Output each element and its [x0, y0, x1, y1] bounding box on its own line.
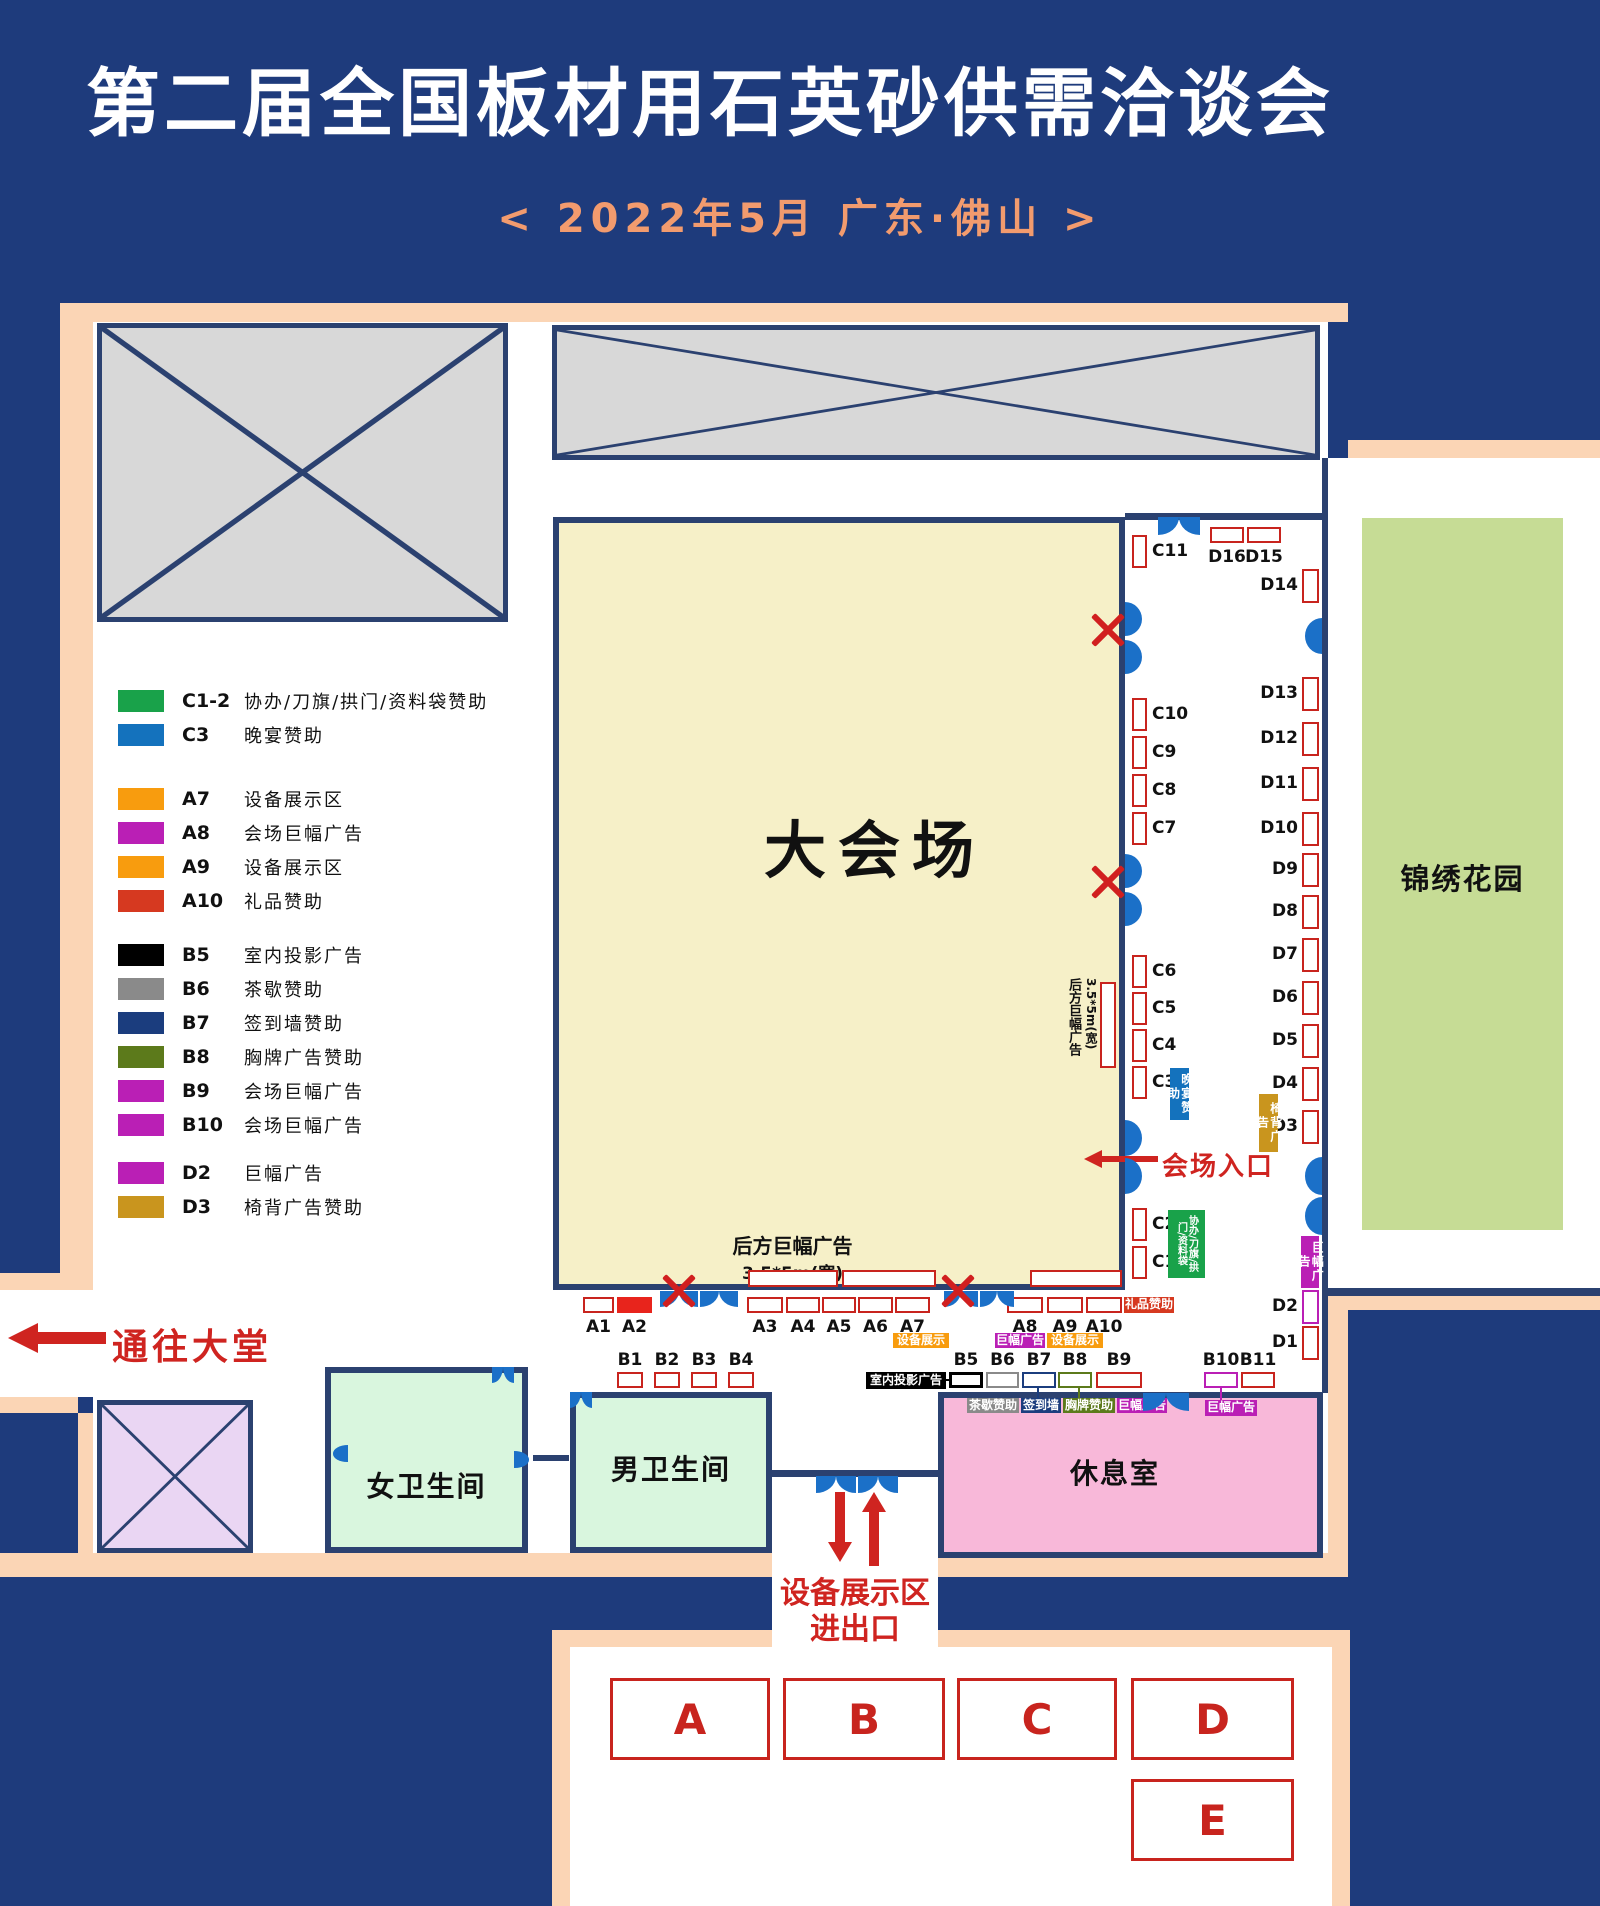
to-lobby-label: 通往大堂	[112, 1318, 272, 1370]
booth-B7	[1022, 1372, 1056, 1388]
frame-left-cap-lower	[0, 1397, 78, 1413]
rear-banner-line1: 后方巨幅广告	[690, 1230, 895, 1259]
restroom-gap-wall	[533, 1455, 569, 1461]
wing-bottom-wall	[1327, 1288, 1600, 1296]
booth-A10	[1086, 1297, 1122, 1313]
lounge-label: 休息室	[938, 1452, 1292, 1492]
booth-D12	[1302, 722, 1319, 756]
hall-entrance-label: 会场入口	[1162, 1146, 1274, 1183]
blocked-area-left	[97, 323, 508, 622]
door-icon	[514, 1451, 529, 1468]
door-icon	[1125, 602, 1142, 636]
women-restroom	[325, 1367, 528, 1553]
garden-label: 锦绣花园	[1362, 856, 1563, 898]
rear-banner-rect-2	[842, 1270, 936, 1287]
gate-arrow-down	[828, 1492, 852, 1566]
equipment-gate-label: 设备展示区 进出口	[762, 1576, 948, 1648]
sponsor-tag-签到墙-10: 签到墙	[1021, 1398, 1061, 1413]
legend-code-A8: A8	[182, 822, 244, 844]
legend-code-B6: B6	[182, 978, 244, 1000]
equipment-gate-line1: 设备展示区	[762, 1576, 948, 1612]
booth-C9	[1132, 736, 1147, 769]
page-title: 第二届全国板材用石英砂供需洽谈会	[0, 44, 1420, 151]
booth-label-C4: C4	[1152, 1035, 1176, 1055]
booth-C10	[1132, 698, 1147, 731]
booth-label-D5: D5	[1254, 1030, 1298, 1050]
booth-D1	[1302, 1326, 1319, 1360]
rear-banner-rect-1	[748, 1270, 838, 1287]
legend-row-B6: B6茶歇赞助	[118, 972, 538, 1006]
booth-label-C6: C6	[1152, 961, 1176, 981]
booth-B2	[654, 1372, 680, 1388]
door-icon	[570, 1392, 592, 1408]
legend-code-C3: C3	[182, 724, 244, 746]
equipment-zone-A: A	[610, 1678, 770, 1760]
door-icon	[1125, 854, 1142, 888]
booth-label-D11: D11	[1254, 773, 1298, 793]
booth-label-D4: D4	[1254, 1073, 1298, 1093]
door-icon	[1305, 1157, 1322, 1195]
legend-row-A7: A7设备展示区	[118, 782, 538, 816]
booth-B5	[949, 1372, 983, 1388]
legend-swatch-B10	[118, 1114, 164, 1136]
blocked-area-lavender	[97, 1400, 253, 1553]
legend-swatch-A9	[118, 856, 164, 878]
booth-label-C10: C10	[1152, 704, 1188, 724]
legend-desc-B8: 胸牌广告赞助	[244, 1044, 364, 1070]
legend-code-B5: B5	[182, 944, 244, 966]
sponsor-tag-巨幅广告-13: 巨幅广告	[1205, 1400, 1257, 1416]
legend-row-B9: B9会场巨幅广告	[118, 1074, 538, 1108]
booth-label-C9: C9	[1152, 742, 1176, 762]
legend-desc-D3: 椅背广告赞助	[244, 1194, 364, 1220]
booth-label-C8: C8	[1152, 780, 1176, 800]
sponsor-tag-胸牌赞助-11: 胸牌赞助	[1063, 1398, 1115, 1413]
to-lobby-arrow	[8, 1323, 108, 1353]
booth-A6	[858, 1297, 893, 1313]
legend-code-A9: A9	[182, 856, 244, 878]
door-icon	[980, 1291, 1014, 1307]
booth-label-D6: D6	[1254, 987, 1298, 1007]
booth-A2	[617, 1297, 652, 1313]
closed-door-x-icon	[661, 1273, 697, 1309]
legend-code-A7: A7	[182, 788, 244, 810]
legend-desc-B10: 会场巨幅广告	[244, 1112, 364, 1138]
connector-b10	[1220, 1388, 1222, 1400]
legend-swatch-D3	[118, 1196, 164, 1218]
legend-row-C3: C3晚宴赞助	[118, 718, 538, 752]
booth-A5	[822, 1297, 856, 1313]
floor-plan-poster: 第二届全国板材用石英砂供需洽谈会 < 2022年5月 广东·佛山 > 大会场 锦…	[0, 0, 1600, 1906]
frame-band-left	[0, 1553, 772, 1577]
legend-swatch-A10	[118, 890, 164, 912]
legend-swatch-C1-2	[118, 690, 164, 712]
frame-left-cap-upper	[0, 1273, 97, 1290]
booth-D9	[1302, 853, 1319, 887]
frame-equip-right	[1332, 1630, 1350, 1906]
legend-row-D2: D2巨幅广告	[118, 1156, 538, 1190]
legend-row-A8: A8会场巨幅广告	[118, 816, 538, 850]
frame-topright	[1348, 440, 1600, 458]
rear-banner-v-line2: 3.5*5m(宽)	[1083, 978, 1100, 1078]
legend-row-D3: D3椅背广告赞助	[118, 1190, 538, 1224]
equipment-zone-E: E	[1131, 1779, 1294, 1861]
booth-C11	[1132, 535, 1147, 568]
frame-equip-topleft	[552, 1630, 772, 1647]
booth-label-D15: D15	[1235, 547, 1293, 567]
sponsor-tag-礼品赞助-4: 礼品赞助	[1124, 1297, 1174, 1313]
sponsor-tag-巨幅广告-3: 巨幅广告	[1301, 1236, 1319, 1288]
booth-B4	[728, 1372, 754, 1388]
frame-equip-topright	[938, 1630, 1332, 1647]
booth-label-B11: B11	[1229, 1350, 1287, 1370]
main-hall	[553, 517, 1125, 1290]
frame-right-thin	[1327, 1310, 1348, 1553]
men-restroom-label: 男卫生间	[570, 1448, 772, 1488]
connector-b7	[1037, 1388, 1039, 1398]
legend-desc-B9: 会场巨幅广告	[244, 1078, 364, 1104]
door-icon	[1125, 892, 1142, 926]
booth-A7	[895, 1297, 930, 1313]
legend-desc-A10: 礼品赞助	[244, 888, 324, 914]
legend-row-C1-2: C1-2协办/刀旗/拱门/资料袋赞助	[118, 684, 538, 718]
door-icon	[1125, 1158, 1142, 1194]
door-icon	[1125, 640, 1142, 674]
legend-row-B7: B7签到墙赞助	[118, 1006, 538, 1040]
booth-B9	[1096, 1372, 1142, 1388]
sponsor-tag-设备展示-5: 设备展示	[893, 1333, 949, 1348]
booth-label-D12: D12	[1254, 728, 1298, 748]
rear-banner-note-vertical: 后方巨幅广告 3.5*5m(宽)	[1064, 978, 1100, 1078]
booth-C6	[1132, 955, 1147, 988]
booth-label-D9: D9	[1254, 859, 1298, 879]
booth-A3	[747, 1297, 783, 1313]
frame-left	[60, 303, 93, 1273]
booth-B8	[1058, 1372, 1092, 1388]
equipment-zone-C: C	[957, 1678, 1117, 1760]
legend-desc-C1-2: 协办/刀旗/拱门/资料袋赞助	[244, 688, 488, 714]
booth-label-D14: D14	[1254, 575, 1298, 595]
booth-label-D8: D8	[1254, 901, 1298, 921]
booth-B1	[617, 1372, 643, 1388]
main-hall-label: 大会场	[575, 800, 1175, 890]
booth-C3	[1132, 1066, 1147, 1099]
sponsor-tag-室内投影广告-8: 室内投影广告	[866, 1372, 946, 1389]
connector-b8	[1078, 1388, 1080, 1398]
frame-top	[60, 303, 1348, 322]
booth-D15	[1247, 527, 1281, 543]
sponsor-tag-协办/刀旗/拱门/资料袋-2: 协办/刀旗/拱门/资料袋	[1168, 1210, 1205, 1278]
legend-row-B10: B10会场巨幅广告	[118, 1108, 538, 1142]
booth-B6	[986, 1372, 1019, 1388]
sponsor-tag-椅背广告-1: 椅背广告	[1259, 1094, 1278, 1152]
door-icon	[1305, 618, 1322, 654]
legend-desc-C3: 晚宴赞助	[244, 722, 324, 748]
booth-D6	[1302, 981, 1319, 1015]
legend-desc-D2: 巨幅广告	[244, 1160, 324, 1186]
door-icon	[1143, 1393, 1189, 1411]
door-icon	[1158, 517, 1200, 535]
booth-label-C5: C5	[1152, 998, 1176, 1018]
booth-label-D2: D2	[1254, 1296, 1298, 1316]
legend-row-A10: A10礼品赞助	[118, 884, 538, 918]
booth-B11	[1241, 1372, 1275, 1388]
frame-equip-left	[552, 1630, 570, 1906]
booth-label-B4: B4	[716, 1350, 766, 1370]
rear-banner-v-line1: 后方巨幅广告	[1064, 978, 1083, 1078]
equipment-zone-B: B	[783, 1678, 945, 1760]
booth-A4	[786, 1297, 820, 1313]
booth-label-B9: B9	[1084, 1350, 1154, 1370]
booth-label-A2: A2	[605, 1317, 664, 1337]
legend-swatch-C3	[118, 724, 164, 746]
booth-D11	[1302, 767, 1319, 801]
equipment-gate-line2: 进出口	[762, 1612, 948, 1648]
legend-desc-A9: 设备展示区	[244, 854, 344, 880]
frame-wing-bottom	[1327, 1295, 1600, 1310]
legend-code-D2: D2	[182, 1162, 244, 1184]
legend-desc-A8: 会场巨幅广告	[244, 820, 364, 846]
corridor-top-wall	[1125, 513, 1328, 520]
booth-B3	[691, 1372, 717, 1388]
legend-row-A9: A9设备展示区	[118, 850, 538, 884]
legend-code-B8: B8	[182, 1046, 244, 1068]
closed-door-x-icon	[1090, 864, 1126, 900]
booth-D5	[1302, 1024, 1319, 1058]
closed-door-x-icon	[1090, 612, 1126, 648]
door-icon	[1125, 1120, 1142, 1156]
legend-row-B5: B5室内投影广告	[118, 938, 538, 972]
booth-label-D10: D10	[1254, 818, 1298, 838]
booth-C2	[1132, 1208, 1147, 1241]
legend-desc-B6: 茶歇赞助	[244, 976, 324, 1002]
legend-code-C1-2: C1-2	[182, 690, 244, 712]
sponsor-tag-晚宴赞助-0: 晚宴赞助	[1170, 1068, 1189, 1120]
booth-C4	[1132, 1029, 1147, 1062]
legend-code-B10: B10	[182, 1114, 244, 1136]
rear-banner-rect-3	[1030, 1270, 1122, 1287]
booth-D8	[1302, 895, 1319, 929]
legend-desc-B7: 签到墙赞助	[244, 1010, 344, 1036]
door-icon	[333, 1445, 348, 1462]
legend-swatch-D2	[118, 1162, 164, 1184]
booth-B10	[1204, 1372, 1238, 1388]
page-subtitle: < 2022年5月 广东·佛山 >	[180, 186, 1420, 244]
booth-D16	[1210, 527, 1244, 543]
door-icon	[816, 1476, 856, 1493]
hall-entrance-arrow	[1084, 1150, 1159, 1168]
door-icon	[1305, 1197, 1322, 1235]
legend-code-D3: D3	[182, 1196, 244, 1218]
closed-door-x-icon	[940, 1273, 976, 1309]
rear-banner-rect-4	[1100, 982, 1116, 1068]
booth-C1	[1132, 1246, 1147, 1279]
legend-code-A10: A10	[182, 890, 244, 912]
booth-D14	[1302, 569, 1319, 603]
booth-D7	[1302, 938, 1319, 972]
door-icon	[858, 1476, 898, 1493]
booth-D4	[1302, 1067, 1319, 1101]
legend-code-B7: B7	[182, 1012, 244, 1034]
connector-b5	[946, 1379, 951, 1381]
legend-desc-B5: 室内投影广告	[244, 942, 364, 968]
sponsor-tag-巨幅广告-6: 巨幅广告	[995, 1333, 1045, 1348]
booth-label-D13: D13	[1254, 683, 1298, 703]
legend-code-B9: B9	[182, 1080, 244, 1102]
booth-D10	[1302, 812, 1319, 846]
booth-label-D7: D7	[1254, 944, 1298, 964]
legend-swatch-B5	[118, 944, 164, 966]
booth-D13	[1302, 677, 1319, 711]
legend-swatch-B8	[118, 1046, 164, 1068]
sponsor-tag-茶歇赞助-9: 茶歇赞助	[967, 1398, 1019, 1413]
booth-label-C7: C7	[1152, 818, 1176, 838]
legend-swatch-B9	[118, 1080, 164, 1102]
booth-C7	[1132, 812, 1147, 845]
booth-A1	[583, 1297, 614, 1313]
legend-swatch-B7	[118, 1012, 164, 1034]
booth-C8	[1132, 774, 1147, 807]
booth-A9	[1047, 1297, 1083, 1313]
gate-arrow-up	[862, 1492, 886, 1566]
legend-swatch-A8	[118, 822, 164, 844]
sponsor-tag-设备展示-7: 设备展示	[1047, 1333, 1103, 1348]
booth-label-C11: C11	[1152, 541, 1188, 561]
equipment-zone-D: D	[1131, 1678, 1294, 1760]
legend-swatch-A7	[118, 788, 164, 810]
legend-desc-A7: 设备展示区	[244, 786, 344, 812]
legend-row-B8: B8胸牌广告赞助	[118, 1040, 538, 1074]
booth-C5	[1132, 992, 1147, 1025]
legend-swatch-B6	[118, 978, 164, 1000]
women-restroom-label: 女卫生间	[325, 1465, 528, 1505]
booth-D3	[1302, 1110, 1319, 1144]
booth-D2	[1302, 1290, 1319, 1324]
door-icon	[492, 1367, 514, 1383]
door-icon	[700, 1291, 738, 1307]
booth-label-D1: D1	[1254, 1332, 1298, 1352]
blocked-area-top	[552, 325, 1320, 460]
